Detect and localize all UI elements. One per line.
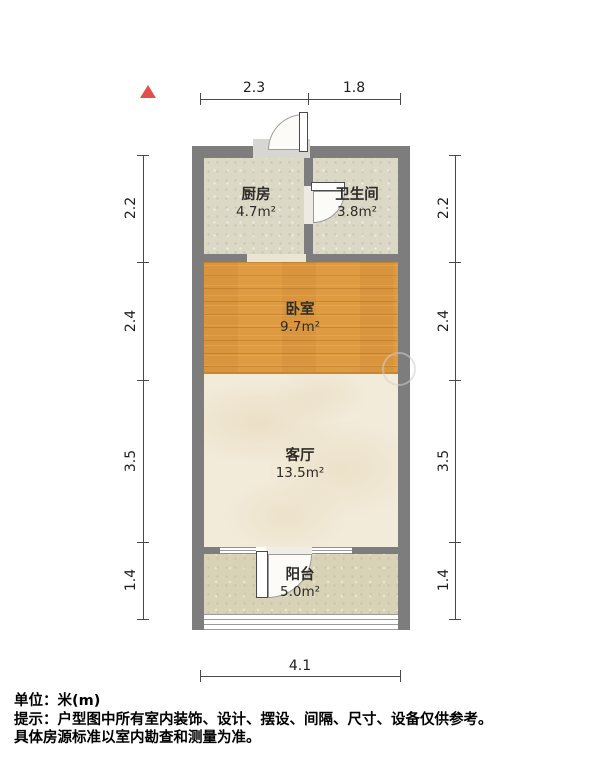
floorplan-canvas: 2.3 1.8 4.1 2.2 2.4 3.5 1.4 2.2 2.4 3.5 … [0,0,600,775]
watermark-circle [382,352,416,386]
dim-tick [137,542,149,543]
bedroom-label: 卧室 9.7m² [280,302,320,336]
balcony-window-right [312,547,352,554]
balcony-name: 阳台 [280,567,320,584]
wall-bathroom-bottom [306,254,398,262]
balcony-door-opening [266,547,312,554]
balcony-outer-window [204,614,398,630]
dim-tick [137,262,149,263]
dim-label-left-1: 2.2 [123,186,139,230]
dim-tick [449,619,461,620]
wall-balcony-stub-right [352,547,398,554]
entrance-door-leaf [299,112,308,152]
dim-line-top [200,99,400,100]
dim-label-bottom: 4.1 [278,658,322,674]
dim-tick [449,542,461,543]
dim-label-right-1: 2.2 [436,186,452,230]
dim-label-right-4: 1.4 [436,558,452,602]
kitchen-name: 厨房 [236,187,276,204]
disclaimer-line-2: 具体房源标准以室内勘查和测量为准。 [14,729,592,748]
bathroom-name: 卫生间 [335,187,379,204]
dim-line-bottom [200,676,400,677]
dim-tick [400,670,401,682]
living-room-label: 客厅 13.5m² [276,448,325,482]
dim-tick [449,155,461,156]
disclaimer-line-1: 提示：户型图中所有室内装饰、设计、摆设、间隔、尺寸、设备仅供参考。 [14,711,592,730]
dim-line-right [455,155,456,619]
dim-tick [308,93,309,105]
unit-note: 单位：米(m) [14,692,592,711]
dim-tick [137,380,149,381]
dim-line-left [143,155,144,619]
kitchen-label: 厨房 4.7m² [236,187,276,221]
wall-balcony-stub-left [204,547,220,554]
dim-label-left-4: 1.4 [123,558,139,602]
dim-tick [137,619,149,620]
wall-right [398,146,410,630]
wall-kitchen-bottom [204,254,247,262]
dim-label-left-2: 2.4 [123,299,139,343]
footer-notes: 单位：米(m) 提示：户型图中所有室内装饰、设计、摆设、间隔、尺寸、设备仅供参考… [14,692,592,748]
balcony-area: 5.0m² [280,584,320,601]
dim-tick [449,262,461,263]
bedroom-area: 9.7m² [280,319,320,336]
dim-tick [449,380,461,381]
dim-tick [400,93,401,105]
balcony-door-leaf [256,551,268,598]
dim-tick [137,155,149,156]
balcony-window-left [220,547,256,554]
living-room-name: 客厅 [276,448,325,465]
bathroom-door-opening [304,186,313,224]
wall-left [192,146,204,630]
balcony-label: 阳台 5.0m² [280,567,320,601]
dim-label-right-3: 3.5 [436,439,452,483]
dim-tick [200,93,201,105]
bathroom-label: 卫生间 3.8m² [335,187,379,221]
kitchen-passage-threshold [247,254,306,262]
bathroom-area: 3.8m² [335,204,379,221]
dim-label-top-right: 1.8 [332,80,376,96]
kitchen-area: 4.7m² [236,204,276,221]
living-room-area: 13.5m² [276,465,325,482]
bedroom-name: 卧室 [280,302,320,319]
dim-label-left-3: 3.5 [123,439,139,483]
dim-label-right-2: 2.4 [436,299,452,343]
north-indicator-icon [140,85,156,98]
dim-label-top-left: 2.3 [232,80,276,96]
dim-tick [200,670,201,682]
